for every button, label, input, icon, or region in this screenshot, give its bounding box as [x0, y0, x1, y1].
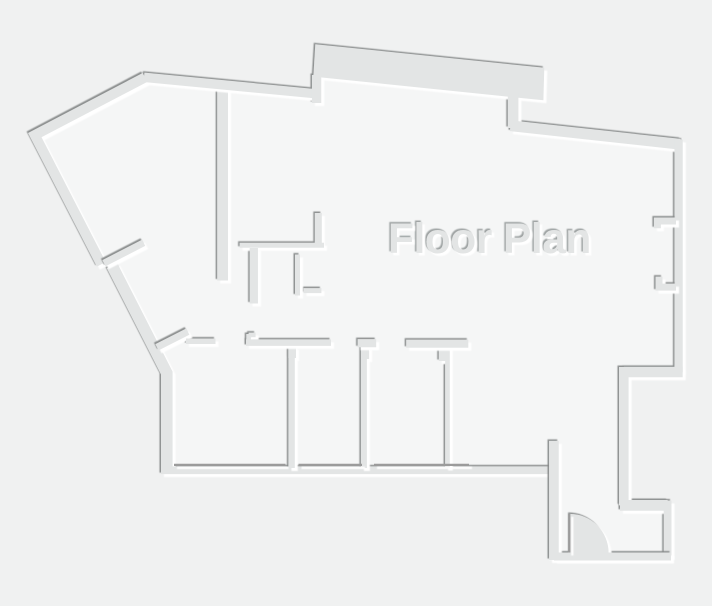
svg-text:Floor Plan: Floor Plan — [388, 216, 591, 263]
